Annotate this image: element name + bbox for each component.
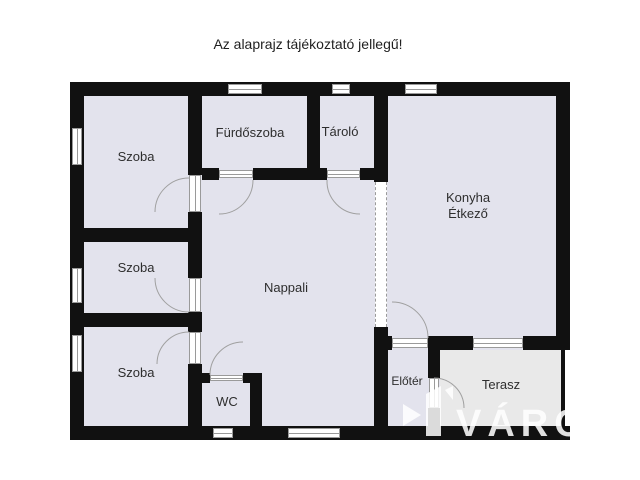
room-label-konyha-line1: Konyha xyxy=(446,190,490,205)
room-label-furdoszoba: Fürdőszoba xyxy=(216,125,285,141)
watermark-text: VÁRO xyxy=(456,403,590,446)
door-arc-tarolo xyxy=(327,180,360,214)
door-arc-szoba-middle xyxy=(155,278,189,312)
room-label-szoba-bottom: Szoba xyxy=(118,365,155,381)
door-arc-konyha-eloter xyxy=(392,302,428,338)
door-arc-furdoszoba xyxy=(219,180,253,214)
room-label-terasz: Terasz xyxy=(482,377,520,393)
room-label-konyha-line2: Étkező xyxy=(448,206,488,221)
room-label-konyha-etkezo: Konyha Étkező xyxy=(446,190,490,222)
door-arc-szoba-top xyxy=(155,178,189,212)
watermark-logo-icon xyxy=(403,386,453,436)
room-label-szoba-top: Szoba xyxy=(118,149,155,165)
room-label-szoba-middle: Szoba xyxy=(118,260,155,276)
floorplan-page: Az alaprajz tájékoztató jellegű! xyxy=(0,0,640,480)
room-label-nappali: Nappali xyxy=(264,280,308,296)
room-label-wc: WC xyxy=(216,394,238,410)
door-arc-wc xyxy=(210,342,243,375)
room-label-tarolo: Tároló xyxy=(322,124,359,140)
room-label-eloter: Előtér xyxy=(391,373,422,389)
door-arc-szoba-bottom xyxy=(157,332,189,364)
